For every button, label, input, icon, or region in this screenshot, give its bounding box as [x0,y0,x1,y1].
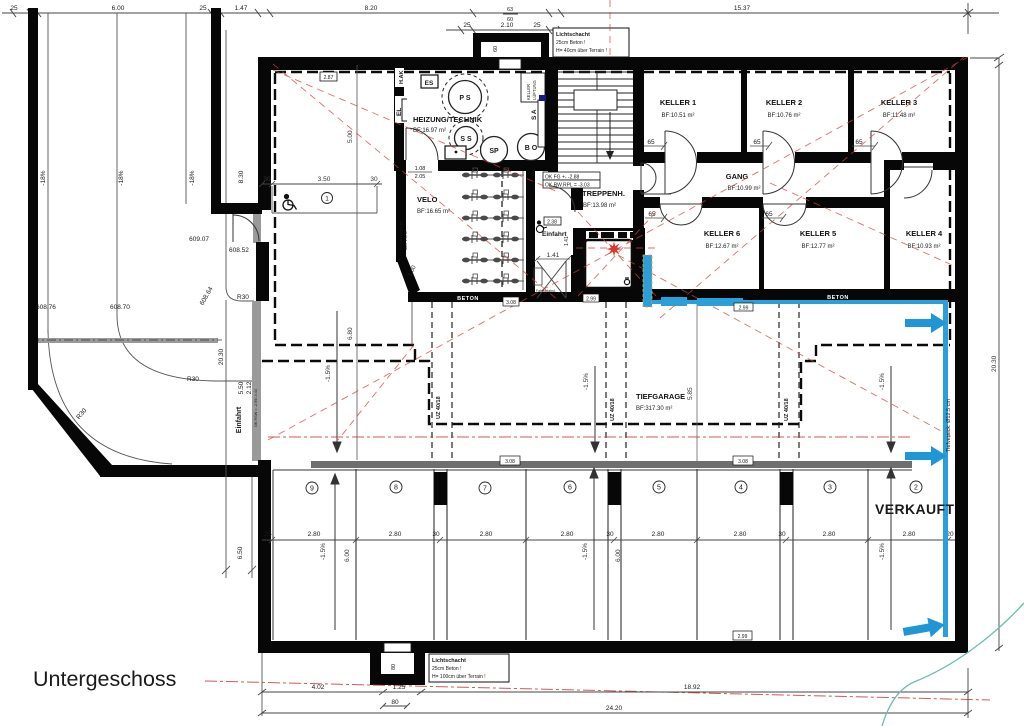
svg-text:P S: P S [459,95,470,102]
svg-text:30: 30 [606,531,614,538]
svg-text:5.00: 5.00 [347,130,354,143]
svg-text:5: 5 [657,485,661,492]
svg-text:-18%: -18% [189,170,196,185]
svg-text:Lichtschacht: Lichtschacht [432,658,466,664]
svg-text:3.08: 3.08 [506,300,516,306]
svg-text:2.99: 2.99 [739,306,749,312]
svg-text:15.37: 15.37 [734,5,751,12]
svg-text:30: 30 [778,531,786,538]
svg-text:65: 65 [765,211,773,218]
svg-text:6.00: 6.00 [112,5,125,12]
svg-text:KELLER 4: KELLER 4 [906,229,943,238]
svg-text:2.80: 2.80 [308,531,321,538]
svg-text:2.99: 2.99 [738,634,748,640]
svg-text:OK FG +- -2.88: OK FG +- -2.88 [545,175,580,181]
svg-text:BF:10.76 m²: BF:10.76 m² [767,113,800,119]
svg-text:8: 8 [394,485,398,492]
svg-text:H= 40cm über Terrain !: H= 40cm über Terrain ! [556,48,607,54]
svg-text:2.10: 2.10 [501,22,514,29]
svg-text:1: 1 [325,196,329,203]
svg-text:Schrankenanlage: Schrankenanlage [399,220,403,250]
svg-text:BF:12.67 m²: BF:12.67 m² [705,244,738,250]
svg-text:KELLER 5: KELLER 5 [800,229,836,238]
svg-text:über 1.07m: über 1.07m [404,231,408,250]
svg-text:3.08: 3.08 [505,459,515,465]
svg-text:6: 6 [568,485,572,492]
svg-text:80: 80 [391,664,397,670]
svg-text:UZ 40/18: UZ 40/18 [610,398,616,421]
svg-text:BETON: BETON [387,191,393,213]
svg-text:BF:16.97 m²: BF:16.97 m² [413,128,446,134]
svg-text:S S: S S [460,136,472,143]
svg-text:6.50: 6.50 [237,546,244,559]
svg-text:25cm Beton !: 25cm Beton ! [432,666,461,672]
svg-text:9: 9 [310,486,314,493]
svg-text:2.80: 2.80 [389,531,402,538]
svg-text:KELLER 3: KELLER 3 [881,98,917,107]
svg-text:2.80: 2.80 [823,531,836,538]
svg-text:S A: S A [531,109,538,120]
svg-text:Tiefversick. Ø12.5 cm: Tiefversick. Ø12.5 cm [946,399,952,452]
svg-text:BF:317.30 m²: BF:317.30 m² [636,406,672,412]
svg-text:BF:12.77 m²: BF:12.77 m² [801,244,834,250]
svg-text:UZ 40/18: UZ 40/18 [784,398,790,421]
svg-text:65: 65 [753,139,761,146]
svg-text:-1.5%: -1.5% [879,373,886,390]
svg-text:25: 25 [10,5,18,12]
svg-text:2.80: 2.80 [561,531,574,538]
svg-text:30: 30 [370,176,378,183]
svg-text:5.85: 5.85 [687,387,694,400]
svg-text:20.30: 20.30 [218,348,225,365]
svg-text:60: 60 [493,46,499,52]
svg-text:BF:10.51 m²: BF:10.51 m² [661,113,694,119]
svg-text:608.70: 608.70 [110,304,130,311]
svg-text:2.87: 2.87 [324,75,334,81]
svg-text:4.02: 4.02 [312,684,325,691]
svg-text:24.20: 24.20 [606,705,623,712]
svg-text:25: 25 [463,22,471,29]
svg-text:30: 30 [432,531,440,538]
svg-text:-1.5%: -1.5% [325,365,332,382]
svg-text:-1.5%: -1.5% [583,373,590,390]
svg-text:4: 4 [739,485,743,492]
svg-text:H.AK: H.AK [399,71,405,84]
svg-text:VELO: VELO [417,195,438,204]
svg-text:1.08: 1.08 [415,166,426,172]
svg-text:BETON: BETON [457,296,479,302]
svg-text:6.00: 6.00 [615,549,622,562]
svg-text:TREPPENH.: TREPPENH. [582,189,625,198]
svg-text:KELLER 1: KELLER 1 [660,98,696,107]
svg-text:ES: ES [425,80,434,87]
svg-text:SP: SP [489,148,499,155]
svg-text:608.76: 608.76 [36,304,56,311]
svg-text:2.12: 2.12 [246,381,253,394]
svg-text:R30: R30 [187,376,199,383]
svg-text:UZ 40/18: UZ 40/18 [436,396,442,419]
svg-text:7: 7 [483,486,487,493]
svg-text:25cm Beton !: 25cm Beton ! [556,40,585,46]
svg-text:-18%: -18% [118,170,125,185]
svg-text:TIEFGARAGE: TIEFGARAGE [636,392,685,401]
svg-text:20.30: 20.30 [991,355,998,372]
svg-text:Untergeschoss: Untergeschoss [33,667,176,691]
svg-text:18.92: 18.92 [684,684,701,691]
svg-text:80: 80 [391,699,399,706]
svg-text:6.00: 6.00 [344,549,351,562]
svg-text:8.30: 8.30 [238,170,245,183]
svg-text:25: 25 [264,531,272,538]
svg-text:-1.5%: -1.5% [879,543,886,560]
svg-text:609.07: 609.07 [189,236,209,243]
svg-text:1.41: 1.41 [564,236,570,246]
svg-text:3.50: 3.50 [318,176,331,183]
svg-text:1.47: 1.47 [235,5,248,12]
svg-text:BF:13.98 m²: BF:13.98 m² [583,203,616,209]
svg-text:Einfahrt: Einfahrt [236,406,243,433]
svg-text:KELLER 2: KELLER 2 [766,98,802,107]
svg-text:2.05: 2.05 [415,174,426,180]
svg-text:BF:10.99 m²: BF:10.99 m² [727,186,760,192]
svg-text:2.80: 2.80 [652,531,665,538]
svg-text:25: 25 [199,5,207,12]
svg-text:2: 2 [914,485,918,492]
svg-text:OK RW.RPL = -3.03: OK RW.RPL = -3.03 [545,183,590,189]
svg-text:KELLER 6: KELLER 6 [704,229,740,238]
svg-text:OK RSW = -2.99/-4.44: OK RSW = -2.99/-4.44 [254,389,258,427]
svg-text:1.41: 1.41 [547,252,560,259]
svg-text:65: 65 [647,139,655,146]
svg-text:608.52: 608.52 [229,247,249,254]
svg-text:H= 100cm über Terrain !: H= 100cm über Terrain ! [432,674,486,680]
svg-text:1.25: 1.25 [393,684,406,691]
svg-text:3: 3 [828,485,832,492]
svg-text:5.50: 5.50 [238,381,245,394]
svg-text:KELLER: KELLER [526,84,531,100]
svg-text:2.80: 2.80 [734,531,747,538]
svg-text:GANG: GANG [726,172,749,181]
svg-text:LÜFTUNG: LÜFTUNG [532,80,537,100]
svg-text:VERKAUFT: VERKAUFT [875,501,954,517]
svg-text:-1.5%: -1.5% [582,543,589,560]
svg-text:65: 65 [648,211,656,218]
svg-text:EL: EL [396,108,403,116]
svg-text:3.08: 3.08 [738,459,748,465]
svg-text:B O: B O [525,145,538,152]
svg-text:25: 25 [533,22,541,29]
svg-text:Lichtschacht: Lichtschacht [556,32,590,38]
svg-text:-18%: -18% [40,170,47,185]
svg-text:BF:11.48 m²: BF:11.48 m² [883,113,916,119]
svg-text:-1.5%: -1.5% [320,543,327,560]
svg-text:8.20: 8.20 [365,5,378,12]
svg-text:R30: R30 [237,294,249,301]
svg-text:6.80: 6.80 [347,327,354,340]
svg-text:30: 30 [263,176,271,183]
svg-text:BF:16.65 m²: BF:16.65 m² [417,209,450,215]
svg-text:2.38: 2.38 [547,220,557,226]
svg-text:2.80: 2.80 [480,531,493,538]
svg-text:2.80: 2.80 [903,531,916,538]
svg-text:63: 63 [507,7,513,13]
svg-text:2.99: 2.99 [586,297,596,303]
